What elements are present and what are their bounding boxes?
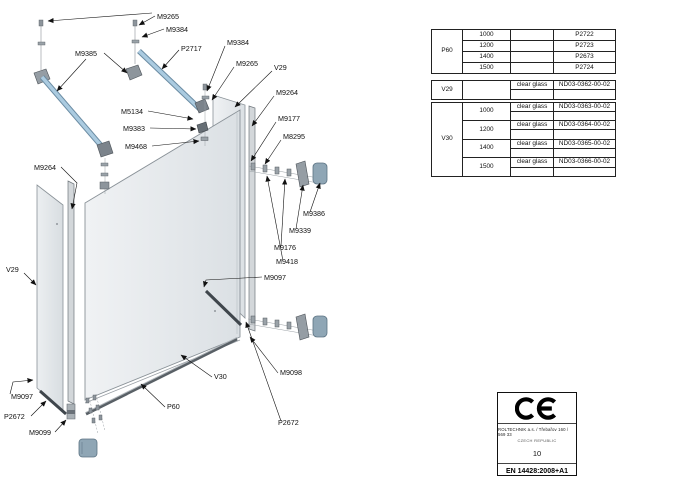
part-label: M9384 — [227, 38, 249, 47]
part-label: P2717 — [181, 44, 202, 53]
size-cell: 1400 — [463, 52, 511, 63]
leader-line — [57, 59, 86, 91]
leader-line — [141, 384, 165, 407]
part-label: M9339 — [289, 226, 311, 235]
washer-m9384-2 — [132, 40, 139, 43]
empty-cell — [554, 90, 616, 99]
part-label: M9264 — [34, 163, 56, 172]
table-row: V301000clear glassND03-0363-00-02 — [432, 102, 616, 111]
size-cell — [463, 81, 511, 100]
screw-m9265-2 — [133, 20, 137, 26]
screw-m9265 — [39, 20, 43, 26]
part-label: M9384 — [166, 25, 188, 34]
empty-cell — [511, 149, 554, 158]
table-row: P601000P2722 — [432, 30, 616, 41]
cover-cap-upper — [313, 163, 327, 184]
code-cell: ND03-0363-00-02 — [554, 102, 616, 111]
wall-bracket-m9385 — [126, 65, 142, 80]
code-cell: ND03-0365-00-02 — [554, 139, 616, 148]
code-cell: P2723 — [554, 41, 616, 52]
leader-line — [48, 13, 152, 21]
leader-line — [246, 322, 281, 421]
part-label: M9265 — [157, 12, 179, 21]
wall-bracket-lower — [296, 314, 309, 340]
part-label: M9418 — [276, 257, 298, 266]
part-label: M9468 — [125, 142, 147, 151]
part-label: P60 — [167, 402, 180, 411]
part-label: V29 — [274, 63, 287, 72]
leader-line — [150, 128, 196, 129]
group-cell: P60 — [432, 30, 463, 74]
code-cell: ND03-0364-00-02 — [554, 121, 616, 130]
leader-line — [281, 179, 285, 246]
part-label: M9264 — [276, 88, 298, 97]
part-label: V30 — [214, 372, 227, 381]
leader-line — [142, 29, 164, 37]
group-cell: V30 — [432, 102, 463, 176]
code-cell: P2724 — [554, 63, 616, 74]
part-label: M8295 — [283, 132, 305, 141]
code-cell: ND03-0362-00-02 — [554, 81, 616, 90]
leader-line — [104, 53, 127, 73]
ce-divider — [498, 423, 576, 424]
empty-cell — [554, 111, 616, 120]
bar-end-clamp-m5134 — [195, 99, 209, 113]
empty-cell — [554, 130, 616, 139]
size-cell: 1000 — [463, 30, 511, 41]
size-cell: 1200 — [463, 121, 511, 140]
size-cell: 1000 — [463, 102, 511, 121]
washer-m9384 — [38, 42, 45, 45]
leader-line — [31, 401, 46, 416]
leader-line — [139, 16, 155, 25]
part-label: M9265 — [236, 59, 258, 68]
empty-cell — [554, 167, 616, 176]
manufacturer-country: CZECH REPUBLIC — [517, 438, 556, 443]
v30-glass-table: V301000clear glassND03-0363-00-021200cle… — [431, 102, 616, 177]
code-cell: P2722 — [554, 30, 616, 41]
part-label: P2672 — [278, 418, 299, 427]
washer-m9468 — [201, 137, 208, 141]
ce-mark-icon — [515, 397, 559, 420]
leader-line — [235, 71, 272, 107]
part-label: M9177 — [278, 114, 300, 123]
size-cell: 1400 — [463, 139, 511, 158]
part-label: M9176 — [274, 243, 296, 252]
cover-cap-lower — [313, 316, 327, 337]
part-label: P2672 — [4, 412, 25, 421]
part-label: M9097 — [264, 273, 286, 282]
leader-line — [24, 273, 36, 285]
wall-profile-left — [67, 181, 75, 419]
leader-line — [250, 337, 278, 373]
table-row: V29clear glassND03-0362-00-02 — [432, 81, 616, 90]
part-label: M9097 — [11, 392, 33, 401]
part-label: M9098 — [280, 368, 302, 377]
wall-profile-right — [249, 106, 255, 331]
foot-fasteners — [79, 394, 105, 457]
part-label: M9099 — [29, 428, 51, 437]
leader-line — [296, 185, 303, 229]
wall-bracket-upper — [296, 161, 309, 187]
glass-type-cell: clear glass — [511, 139, 554, 148]
fastener-chain-upper — [249, 161, 327, 187]
ce-year-number: 10 — [533, 449, 541, 458]
size-cell: 1500 — [463, 63, 511, 74]
group-cell: V29 — [432, 81, 463, 100]
glass-panel-v29-left — [37, 185, 63, 410]
part-label: M5134 — [121, 107, 143, 116]
parts-tables: P601000P27221200P27231400P26731500P2724 … — [431, 29, 615, 177]
part-label: M9383 — [123, 124, 145, 133]
glass-type-cell: clear glass — [511, 121, 554, 130]
leader-line — [148, 111, 193, 119]
empty-cell — [511, 167, 554, 176]
leader-line — [265, 140, 281, 164]
ce-certification-box: ROLTECHNIK a.s. / Třebařov 160 / 569 33 … — [497, 392, 577, 476]
v29-glass-table: V29clear glassND03-0362-00-02 — [431, 80, 616, 100]
leader-line — [162, 50, 179, 69]
empty-cell — [511, 41, 554, 52]
technical-drawing-page: M9265M9384P2717M9385M9384M9265V29M9264M9… — [0, 0, 700, 495]
empty-cell — [511, 90, 554, 99]
code-cell: P2673 — [554, 52, 616, 63]
glass-type-cell: clear glass — [511, 158, 554, 167]
part-label: M9386 — [303, 209, 325, 218]
leader-line — [212, 67, 234, 100]
glass-type-cell: clear glass — [511, 81, 554, 90]
empty-cell — [511, 111, 554, 120]
standard-reference: EN 14428:2008+A1 — [498, 463, 576, 475]
empty-cell — [511, 130, 554, 139]
empty-cell — [511, 52, 554, 63]
empty-cell — [554, 149, 616, 158]
empty-cell — [511, 63, 554, 74]
p60-size-table: P601000P27221200P27231400P26731500P2724 — [431, 29, 616, 74]
fastener-chain-lower — [248, 314, 327, 340]
glass-type-cell: clear glass — [511, 102, 554, 111]
leader-line — [55, 420, 66, 432]
size-cell: 1500 — [463, 158, 511, 177]
empty-cell — [511, 30, 554, 41]
part-label: M9385 — [75, 49, 97, 58]
size-cell: 1200 — [463, 41, 511, 52]
manufacturer-address: ROLTECHNIK a.s. / Třebařov 160 / 569 33 — [498, 427, 576, 437]
part-label: V29 — [6, 265, 19, 274]
code-cell: ND03-0366-00-02 — [554, 158, 616, 167]
leader-line — [310, 183, 320, 212]
